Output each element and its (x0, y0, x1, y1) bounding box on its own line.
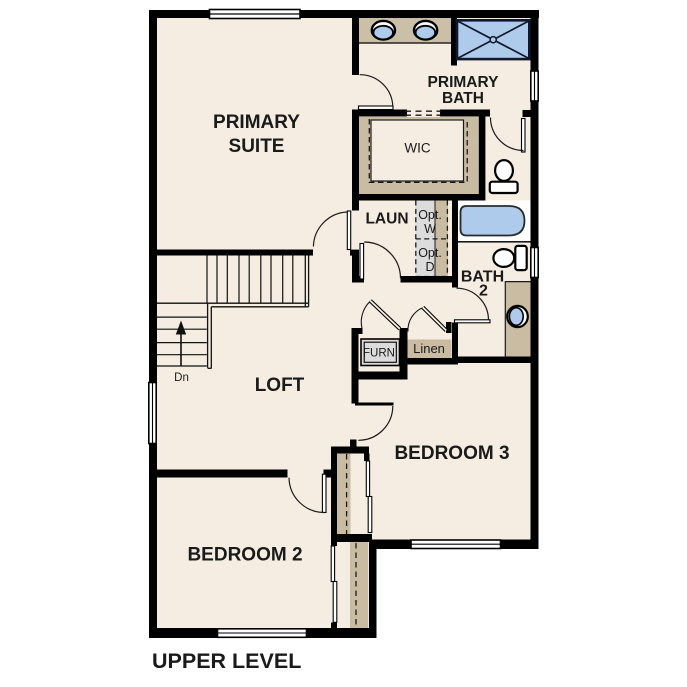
svg-text:WIC: WIC (404, 141, 430, 156)
svg-text:LOFT: LOFT (255, 375, 305, 396)
svg-text:UPPER LEVEL: UPPER LEVEL (152, 649, 301, 673)
svg-text:Dn: Dn (174, 372, 189, 384)
svg-text:BEDROOM 2: BEDROOM 2 (187, 545, 302, 566)
svg-text:W: W (424, 222, 436, 236)
svg-text:LAUN: LAUN (365, 211, 408, 228)
svg-text:Linen: Linen (413, 341, 445, 356)
svg-text:Opt.: Opt. (418, 246, 442, 260)
svg-text:PRIMARY: PRIMARY (428, 74, 500, 91)
svg-text:SUITE: SUITE (229, 136, 285, 157)
svg-text:2: 2 (479, 283, 488, 300)
svg-text:Opt.: Opt. (418, 208, 442, 222)
svg-text:BATH: BATH (442, 90, 484, 107)
svg-text:FURN: FURN (363, 348, 395, 360)
svg-text:D: D (425, 260, 434, 274)
svg-text:PRIMARY: PRIMARY (213, 112, 300, 133)
svg-text:BEDROOM 3: BEDROOM 3 (394, 443, 509, 464)
